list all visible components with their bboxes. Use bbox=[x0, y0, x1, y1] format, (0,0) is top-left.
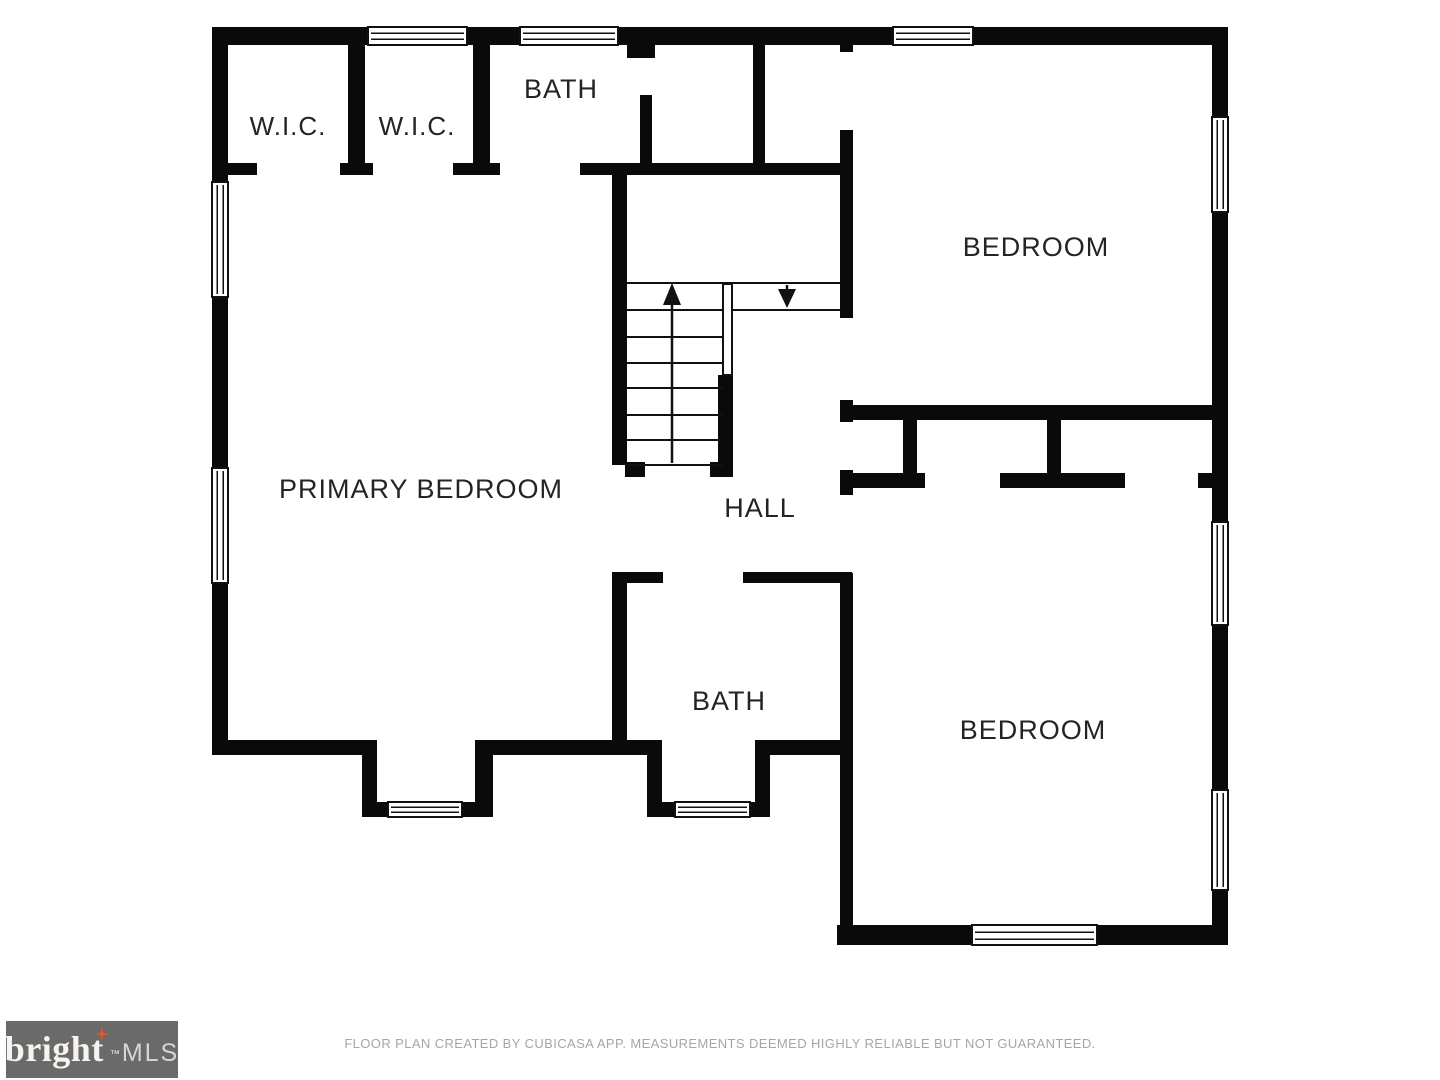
room-label-wic-left: W.I.C. bbox=[250, 111, 327, 141]
window-primary-bay-south bbox=[388, 802, 462, 817]
wall-segment bbox=[1000, 473, 1125, 488]
wall-segment bbox=[753, 45, 765, 163]
wall-segment bbox=[612, 572, 663, 583]
wall-segment bbox=[845, 405, 1212, 420]
room-label-wic-right: W.I.C. bbox=[379, 111, 456, 141]
wall-segment bbox=[755, 740, 852, 755]
wall-segment bbox=[348, 45, 365, 163]
wall-segment bbox=[475, 740, 662, 755]
window-bedroom-bottom-east-lower bbox=[1212, 790, 1228, 890]
window-bedroom-top-east bbox=[1212, 117, 1228, 212]
wall-segment bbox=[612, 175, 627, 465]
stairs-down-arrow-icon bbox=[778, 285, 796, 308]
window-primary-west-lower bbox=[212, 468, 228, 583]
wall-segment bbox=[627, 45, 655, 58]
floor-plan-page: W.I.C. W.I.C. BATH BEDROOM PRIMARY BEDRO… bbox=[0, 0, 1440, 1080]
wall-segment bbox=[212, 27, 228, 755]
wall-segment bbox=[453, 163, 500, 175]
wall-segment bbox=[1047, 420, 1061, 475]
floor-plan: W.I.C. W.I.C. BATH BEDROOM PRIMARY BEDRO… bbox=[0, 0, 1440, 1080]
room-label-bedroom-top: BEDROOM bbox=[963, 232, 1110, 262]
wall-segment bbox=[212, 163, 257, 175]
staircase bbox=[627, 283, 840, 465]
wall-segment bbox=[473, 45, 490, 163]
room-label-hall: HALL bbox=[724, 493, 796, 523]
window-primary-west-upper bbox=[212, 182, 228, 297]
wall-segment bbox=[840, 130, 853, 318]
wall-segment bbox=[718, 375, 733, 477]
room-label-primary-bedroom: PRIMARY BEDROOM bbox=[279, 474, 563, 504]
wall-segment bbox=[840, 573, 853, 925]
wall-segment bbox=[743, 572, 852, 583]
window-bath-top-north bbox=[520, 27, 618, 45]
window-bedroom-bottom-south bbox=[972, 925, 1097, 945]
window-wic-north bbox=[368, 27, 467, 45]
room-label-bedroom-bottom: BEDROOM bbox=[960, 715, 1107, 745]
stair-rail bbox=[723, 284, 732, 375]
window-bedroom-top-north bbox=[893, 27, 973, 45]
wall-segment bbox=[640, 95, 652, 165]
wall-segment bbox=[612, 583, 627, 740]
wall-segment bbox=[903, 420, 917, 475]
logo-trademark: ™ bbox=[110, 1026, 120, 1080]
wall-segment bbox=[840, 473, 925, 488]
wall-segment bbox=[580, 163, 853, 175]
room-label-bath-bottom: BATH bbox=[692, 686, 766, 716]
window-bath-bay-south bbox=[675, 802, 750, 817]
footer-disclaimer: FLOOR PLAN CREATED BY CUBICASA APP. MEAS… bbox=[0, 1036, 1440, 1051]
wall-segment bbox=[1198, 473, 1212, 488]
window-bedroom-bottom-east-upper bbox=[1212, 522, 1228, 625]
logo-suffix-text: MLS bbox=[122, 1025, 179, 1080]
room-label-bath-top: BATH bbox=[524, 74, 598, 104]
wall-segment bbox=[212, 27, 1228, 45]
wall-segment bbox=[212, 740, 362, 755]
wall-segment bbox=[340, 163, 373, 175]
wall-segment bbox=[840, 45, 853, 52]
